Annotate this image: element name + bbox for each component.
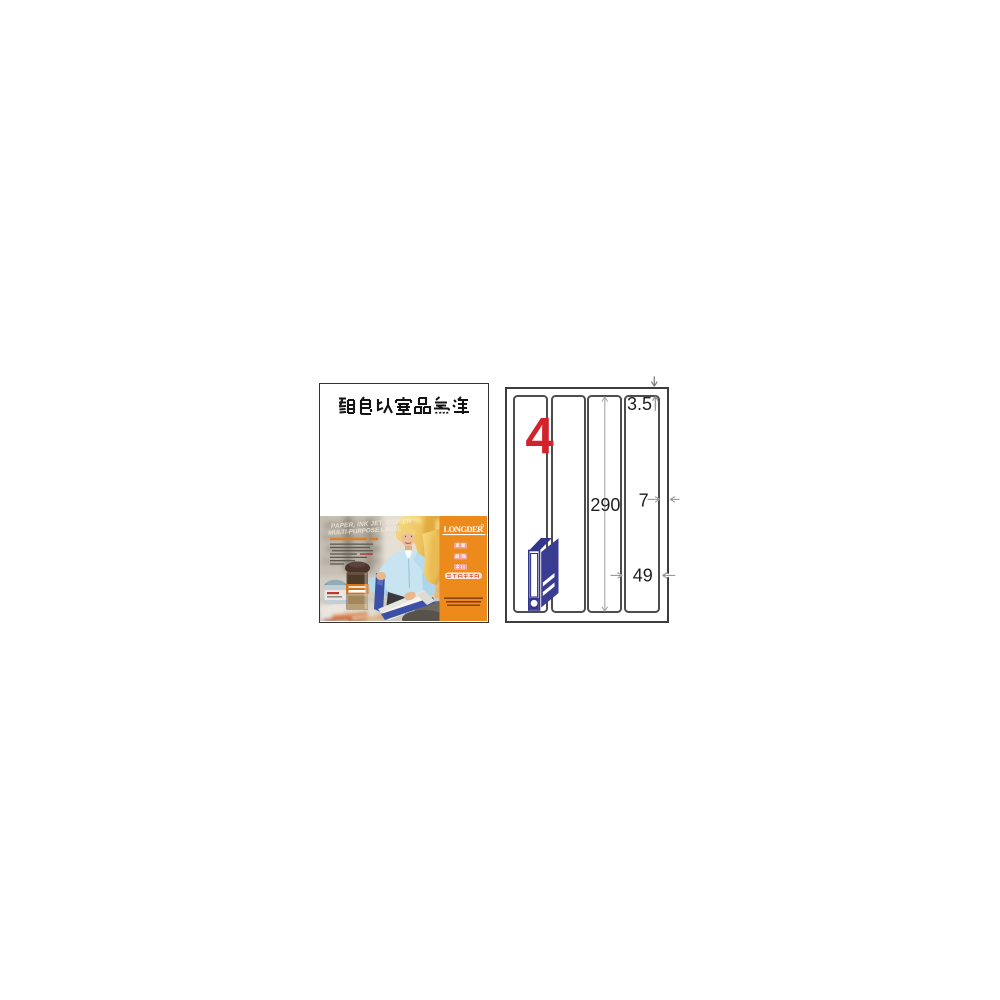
svg-text:49: 49 [633, 566, 653, 586]
svg-text:7: 7 [639, 491, 649, 511]
svg-text:4: 4 [525, 407, 554, 464]
svg-text:3.5: 3.5 [627, 394, 652, 414]
svg-text:290: 290 [590, 495, 620, 515]
